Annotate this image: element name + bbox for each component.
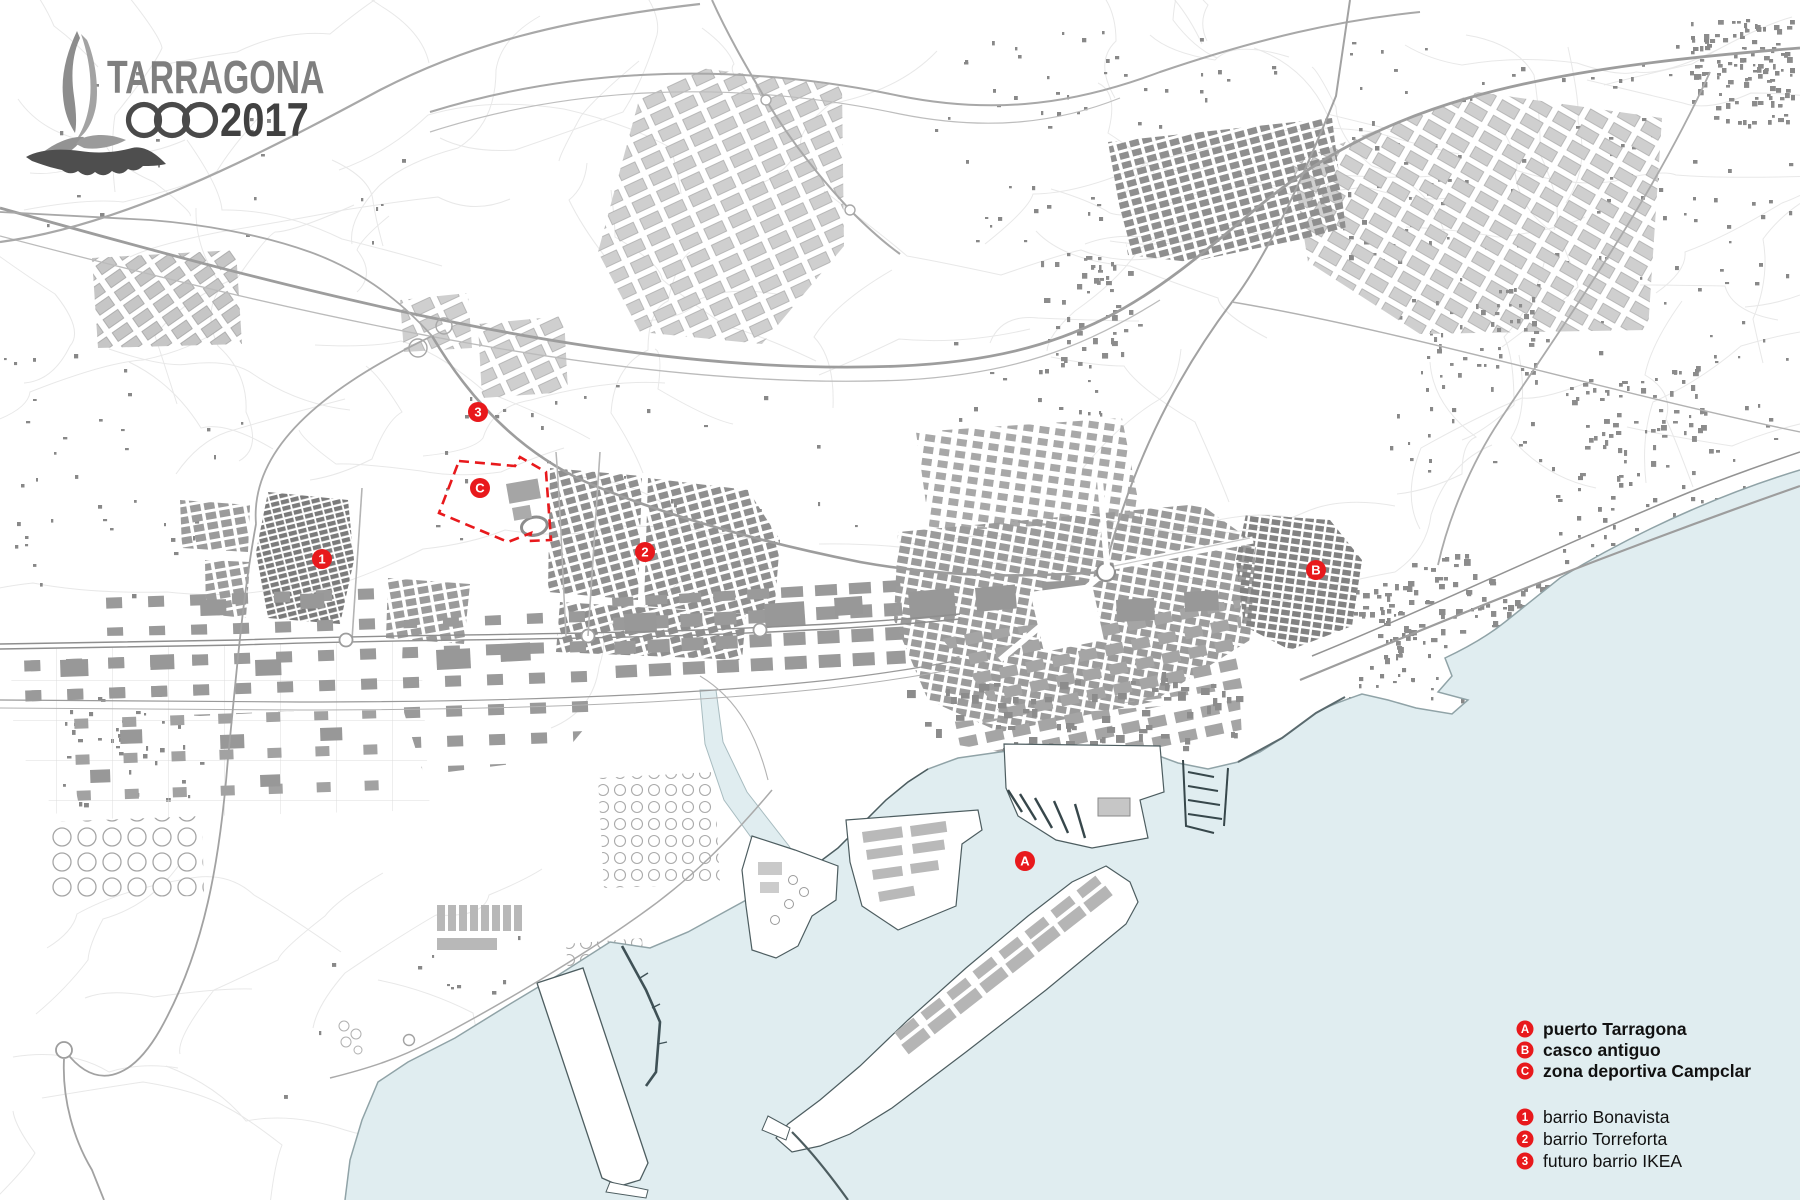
svg-text:B: B: [1521, 1045, 1529, 1057]
svg-text:C: C: [475, 481, 485, 496]
svg-text:barrio Bonavista: barrio Bonavista: [1543, 1107, 1670, 1127]
svg-text:puerto Tarragona: puerto Tarragona: [1543, 1019, 1687, 1039]
svg-text:casco antiguo: casco antiguo: [1543, 1040, 1661, 1060]
svg-text:futuro barrio IKEA: futuro barrio IKEA: [1543, 1151, 1682, 1171]
svg-text:A: A: [1521, 1024, 1529, 1036]
svg-text:3: 3: [474, 405, 481, 420]
svg-text:zona deportiva Campclar: zona deportiva Campclar: [1543, 1061, 1751, 1081]
svg-text:barrio Torreforta: barrio Torreforta: [1543, 1129, 1667, 1149]
svg-text:A: A: [1020, 854, 1030, 869]
svg-text:B: B: [1311, 563, 1320, 578]
svg-text:1: 1: [1522, 1112, 1529, 1124]
svg-text:2: 2: [641, 545, 648, 560]
svg-text:1: 1: [318, 552, 325, 567]
svg-text:2: 2: [1522, 1134, 1528, 1146]
svg-text:3: 3: [1522, 1156, 1528, 1168]
svg-text:2017: 2017: [220, 95, 309, 147]
svg-text:C: C: [1521, 1066, 1529, 1078]
